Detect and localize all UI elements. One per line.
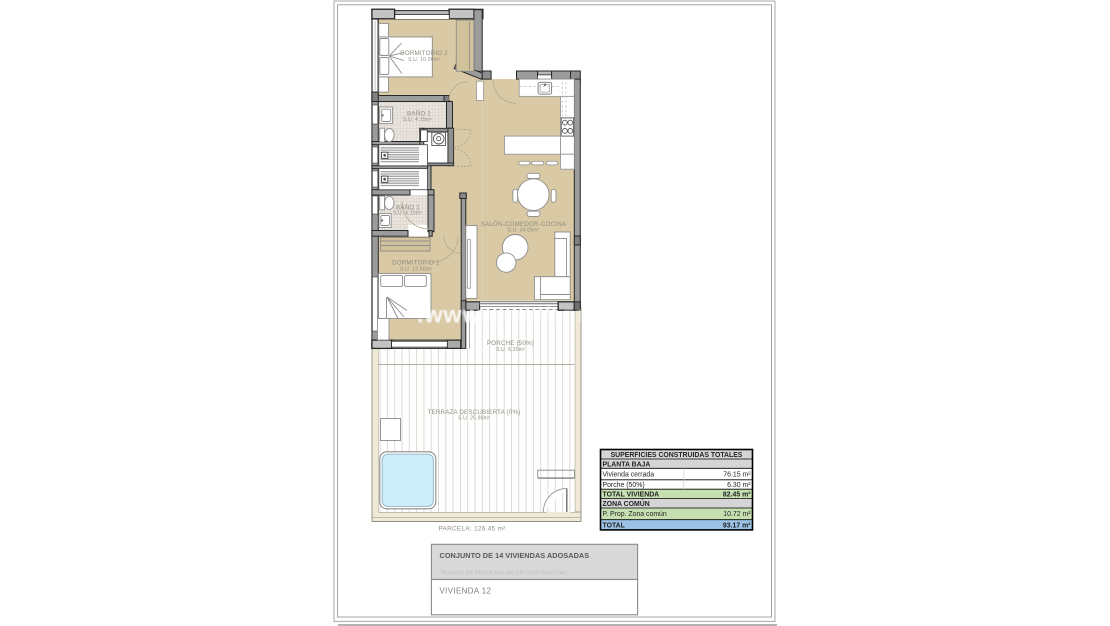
svg-text:VIVIENDA 12: VIVIENDA 12 xyxy=(440,586,492,595)
svg-text:S.U. 4.15m²: S.U. 4.15m² xyxy=(403,117,432,123)
svg-text:S.U. 4.10m²: S.U. 4.10m² xyxy=(393,211,422,217)
svg-text:TOTAL: TOTAL xyxy=(603,522,625,529)
svg-text:TOTAL VIVIENDA: TOTAL VIVIENDA xyxy=(603,491,660,498)
svg-text:DORMITORIO 2: DORMITORIO 2 xyxy=(400,50,448,57)
svg-text:P. Prop. Zona común: P. Prop. Zona común xyxy=(603,511,667,518)
svg-text:PLANTA BAJA: PLANTA BAJA xyxy=(603,461,651,468)
svg-text:82.45 m²: 82.45 m² xyxy=(723,491,751,498)
svg-text:Vivienda cerrada: Vivienda cerrada xyxy=(603,472,655,479)
svg-text:10.72 m²: 10.72 m² xyxy=(723,511,751,518)
svg-text:S.U. 13.60m²: S.U. 13.60m² xyxy=(400,266,432,272)
svg-text:93.17 m²: 93.17 m² xyxy=(723,522,751,529)
svg-text:.spainhouses.net: .spainhouses.net xyxy=(470,301,682,328)
svg-text:SUPERFICIES CONSTRUIDAS TOTALE: SUPERFICIES CONSTRUIDAS TOTALES xyxy=(611,452,743,459)
svg-text:S.U. 25.90m²: S.U. 25.90m² xyxy=(458,416,490,422)
svg-text:ZONA COMÚN: ZONA COMÚN xyxy=(603,499,650,508)
svg-text:Porche (50%): Porche (50%) xyxy=(603,482,645,489)
svg-text:76.15 m²: 76.15 m² xyxy=(723,472,751,479)
svg-text:6.30 m²: 6.30 m² xyxy=(727,482,751,489)
svg-text:S.U. 34.05m²: S.U. 34.05m² xyxy=(508,227,540,233)
svg-text:CONJUNTO DE 14 VIVIENDAS ADOSA: CONJUNTO DE 14 VIVIENDAS ADOSADAS xyxy=(440,551,590,560)
svg-text:"PLANOS DE VENTA SIN VALOR CON: "PLANOS DE VENTA SIN VALOR CONTRACTUAL" xyxy=(440,570,569,576)
svg-text:PARCELA: 126.45 m²: PARCELA: 126.45 m² xyxy=(438,526,505,533)
svg-text:S.U. 6.30m²: S.U. 6.30m² xyxy=(496,347,525,353)
svg-text:S.U. 10.06m²: S.U. 10.06m² xyxy=(408,57,440,63)
